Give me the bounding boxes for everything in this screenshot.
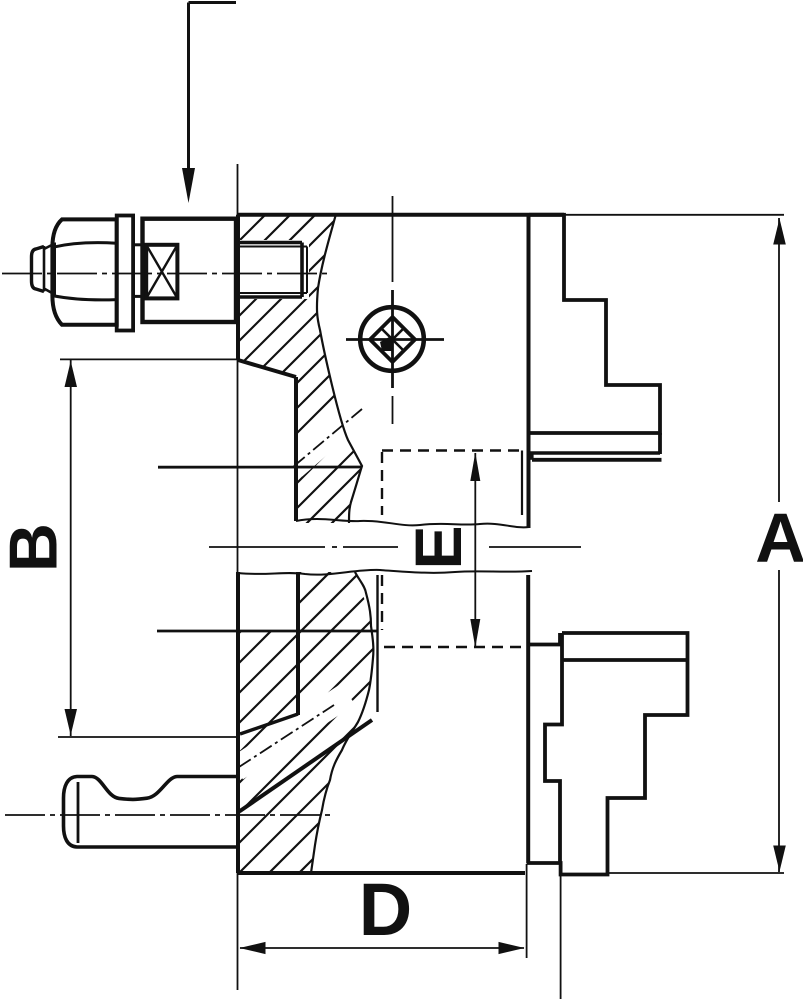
svg-text:E: E: [401, 525, 475, 569]
svg-text:D: D: [359, 868, 412, 951]
svg-text:A: A: [755, 499, 803, 577]
svg-text:B: B: [0, 523, 72, 572]
